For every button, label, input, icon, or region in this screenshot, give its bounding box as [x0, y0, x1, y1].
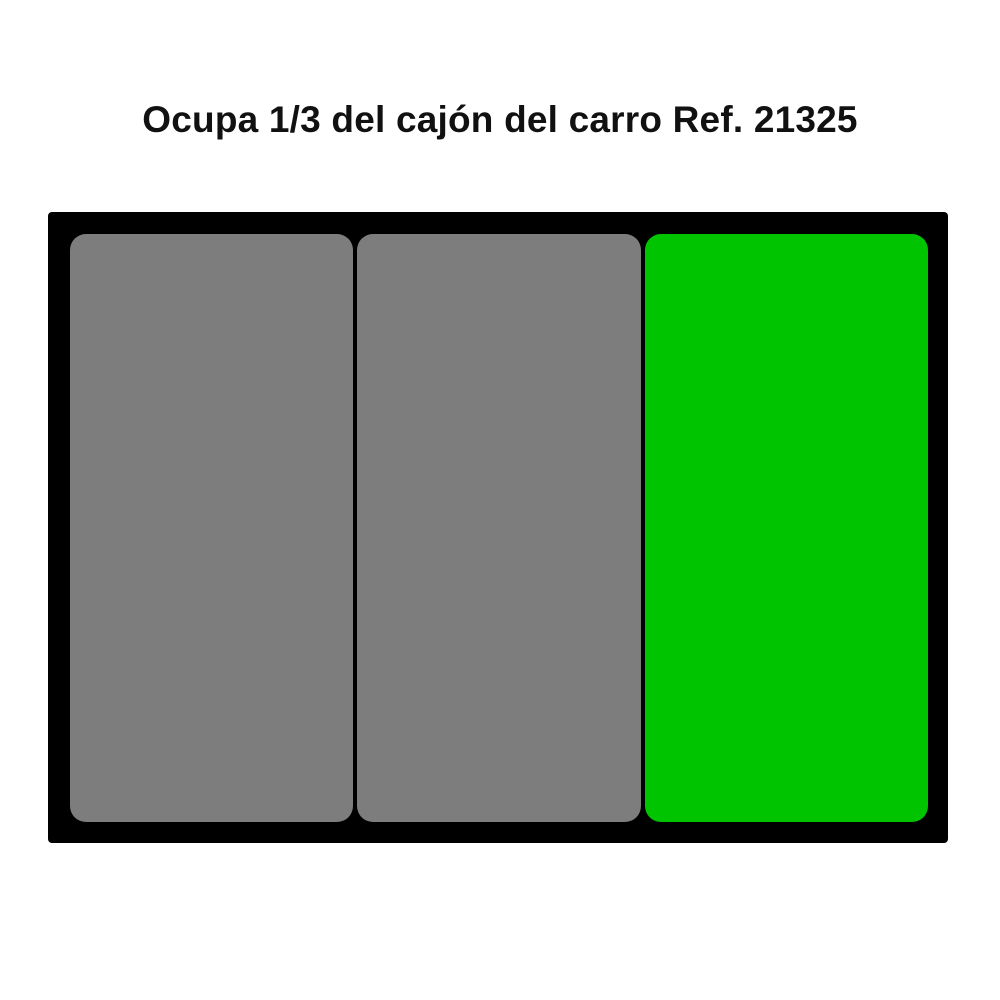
drawer-frame	[48, 212, 948, 843]
page-title: Ocupa 1/3 del cajón del carro Ref. 21325	[0, 97, 1000, 142]
drawer-slot-3	[645, 234, 928, 822]
drawer-slot-2	[357, 234, 640, 822]
drawer-slots	[70, 234, 928, 822]
drawer-slot-1	[70, 234, 353, 822]
